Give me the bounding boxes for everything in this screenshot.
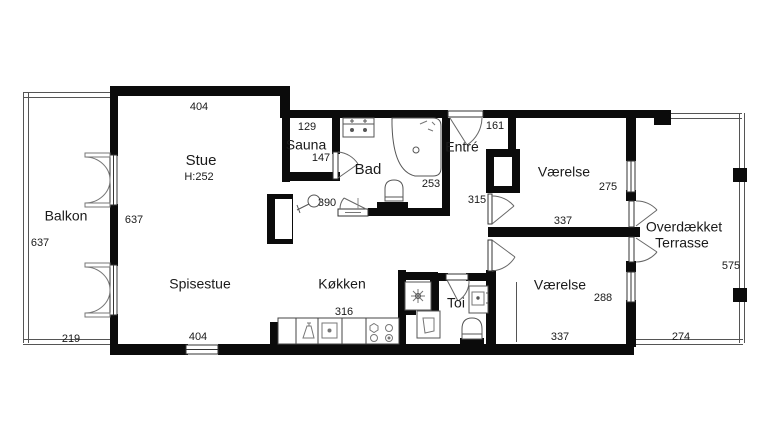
wall-left [110, 314, 118, 355]
room-label-koekken: Køkken [318, 276, 365, 291]
cabinet-icon [417, 311, 440, 338]
stove-icon [370, 324, 393, 342]
wall-between-bedrooms [488, 227, 640, 237]
room-label-sauna: Sauna [286, 137, 326, 152]
dim-vaerelse2-bottom: 337 [551, 331, 569, 343]
wall-left [110, 86, 118, 156]
floor-plan: Balkon 637 219 637 404 Stue H:252 Spises… [0, 0, 768, 422]
window-icon [186, 345, 218, 354]
room-label-terrasse-line1: Overdækket [646, 219, 722, 234]
dim-stue-right: 637 [125, 214, 143, 226]
kitchen-counter [278, 318, 399, 344]
dim-vaerelse2-right: 288 [594, 292, 612, 304]
toilet-base [377, 202, 408, 211]
dim-spisestue-bottom: 404 [189, 331, 207, 343]
wall-toi-niche [404, 309, 416, 315]
terrace-outline [739, 113, 745, 343]
wall-bad-right [442, 118, 450, 215]
room-label-bad: Bad [355, 162, 382, 179]
dim-terrasse-bottom: 274 [672, 331, 690, 343]
wall-top-left [110, 86, 290, 96]
toilet-icon [385, 180, 403, 201]
shower-mixer-icon [297, 195, 320, 213]
bathtub-icon [392, 118, 441, 176]
wall-end-cap [654, 110, 671, 125]
room-label-toi: Toi [447, 295, 465, 310]
dim-hall-390: 390 [318, 197, 336, 209]
toilet-icon [462, 318, 482, 339]
dishwasher-icon [303, 323, 314, 338]
kitchen-sink-icon [322, 323, 337, 338]
dim-koekken-counter: 316 [335, 306, 353, 318]
wall-sauna-right [332, 118, 340, 154]
wall-sauna-bottom [282, 172, 340, 181]
stue-ceiling-height: H:252 [184, 171, 213, 183]
terrace-pillar [733, 168, 747, 182]
wall-toi-top [398, 272, 438, 280]
wall-right [626, 118, 636, 161]
dim-vaerelse1-right: 275 [599, 181, 617, 193]
room-label-stue: Stue [186, 153, 217, 170]
room-label-terrasse-line2: Terrasse [655, 235, 709, 250]
wall-toi-door-left [438, 273, 448, 281]
hall-door-icon [338, 198, 368, 216]
dim-vaerelse1-bottom: 337 [554, 215, 572, 227]
balcony-outline [23, 92, 112, 98]
washing-machine-icon [405, 282, 431, 310]
wall-right [626, 300, 636, 347]
room-label-entre: Entré [445, 139, 478, 154]
dim-balkon-width: 219 [62, 333, 80, 345]
closet-wall [486, 186, 520, 193]
wall-counter-stub [270, 322, 278, 345]
wall-right [626, 261, 636, 272]
dim-stue-top: 404 [190, 101, 208, 113]
dim-corridor-315: 315 [468, 194, 486, 206]
double-door-icon [85, 153, 110, 317]
vanity-sink-icon [343, 118, 374, 137]
wall-bottom [110, 344, 188, 355]
dim-bad-right: 253 [422, 178, 440, 190]
closet-wall [486, 278, 496, 346]
dim-entre-door: 161 [486, 120, 504, 132]
room-label-vaerelse-1: Værelse [538, 164, 590, 179]
fireplace-inner [275, 199, 292, 239]
dim-sauna-inner: 147 [312, 152, 330, 164]
toilet-base [460, 338, 484, 346]
wall-toi-niche [430, 280, 439, 311]
wall-right [626, 190, 636, 201]
closet-front [516, 282, 519, 342]
wall-left [110, 204, 118, 266]
dim-terrasse-right: 575 [722, 260, 740, 272]
room-label-balkon: Balkon [45, 208, 88, 223]
room-label-vaerelse-2: Værelse [534, 277, 586, 292]
room-label-spisestue: Spisestue [169, 276, 230, 291]
wall-bottom [218, 344, 634, 355]
dim-sauna-top: 129 [298, 121, 316, 133]
wall-top-mid [282, 110, 448, 118]
dim-balkon-height: 637 [31, 237, 49, 249]
balcony-outline [23, 92, 29, 343]
terrace-pillar [733, 288, 747, 302]
